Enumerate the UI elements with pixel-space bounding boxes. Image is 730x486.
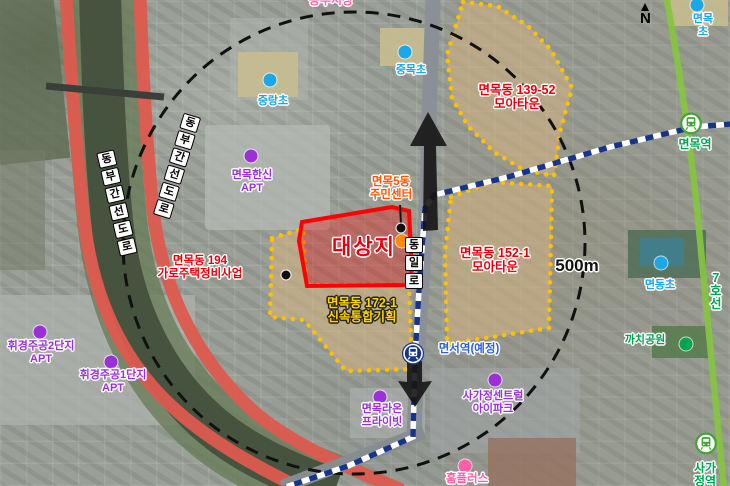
label-apt-sagajeong-central: 사가정센트럴 아이파크 [463,390,524,415]
label-apt-hwigyeong2: 휘경주공2단지 APT [8,340,75,365]
label-apt-raon: 면목라온 프라이빗 [362,403,402,428]
project-194-dot [282,271,291,280]
label-scale-500m: 500m [555,257,598,275]
station-icon-myeonseo-planned [401,342,425,371]
label-community-center: 면목5동 주민센터 [370,176,412,201]
label-station-sagajeong: 사가정역 [693,462,718,486]
apt-dot-hanshin [245,150,258,163]
station-icon-myeonmok [680,113,702,140]
arrow-up [410,112,447,231]
school-dot-myeondong [655,257,668,270]
station-icon-sagajeong [695,433,717,460]
label-station-myeonmok: 면목역 [678,138,711,151]
label-kkachi-park: 까치공원 [625,334,665,347]
label-dongbu-market: 동부시장 [309,0,353,7]
label-apt-hanshin: 면목한신 APT [232,169,272,194]
label-line-7: 7호선 [710,272,722,311]
label-apt-hwigyeong1: 휘경주공1단지 APT [80,369,147,394]
label-school-myeondong: 면동초 [645,279,675,292]
store-dot-homeplus [459,460,472,473]
label-homeplus: 홈플러스 [446,473,488,486]
label-school-jungnang: 중랑초 [258,95,288,108]
north-label: N [640,11,651,26]
satellite-map: N 동부시장 중랑초 중목초 면목초 면동초 면목동 139-52 모아타운 면… [0,0,730,486]
school-dot-jungmok [399,46,412,59]
school-dot-jungnang [264,74,277,87]
park-dot-kkachi [680,338,693,351]
apt-dot-sagajeong-central [489,374,502,387]
label-zone-139-52: 면목동 139-52 모아타운 [479,83,556,111]
label-project-194: 면목동 194 가로주택정비사업 [158,255,243,280]
label-station-myeonseo-planned: 면서역(예정) [439,343,500,356]
road-label-dongil-ro: 동일로 [405,237,423,289]
label-school-myeonmok: 면목초 [690,13,717,38]
apt-dot-raon [374,391,387,404]
apt-dot-hwigyeong1 [105,356,118,369]
label-target-site: 대상지 [332,237,396,259]
community-center-dot [397,224,406,233]
label-zone-152-1: 면목동 152-1 모아타운 [460,246,530,274]
leader-line [400,205,401,224]
label-school-jungmok: 중목초 [396,64,426,77]
apt-dot-hwigyeong2 [34,326,47,339]
label-zone-172-1: 면목동 172-1 신속통합기획 [327,296,397,324]
north-compass: N [640,3,651,26]
